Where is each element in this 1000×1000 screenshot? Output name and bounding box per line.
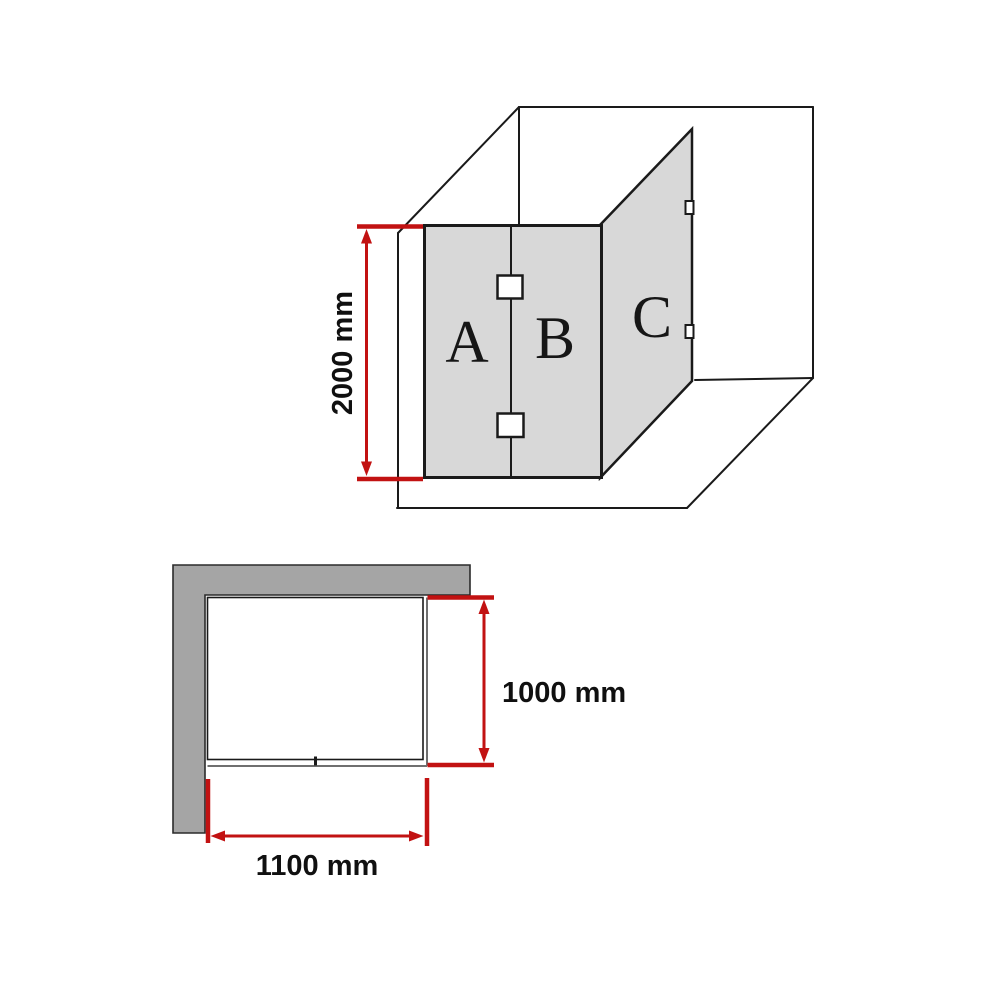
depth-dim-arrow-up	[479, 600, 490, 615]
hinge-top	[498, 276, 523, 299]
back-wall-bottom-edge	[695, 378, 813, 380]
panel-c-label: C	[632, 284, 672, 350]
plan-view: 1000 mm 1100 mm	[173, 565, 626, 882]
wall-bracket-top	[686, 201, 694, 214]
panel-a-label: A	[445, 309, 488, 375]
shower-screen-dimension-diagram: A B C 2000 mm	[0, 0, 1000, 1000]
wall-bracket-bottom	[686, 325, 694, 338]
panel-b-label: B	[535, 305, 575, 371]
ceiling-left-edge	[398, 107, 519, 233]
depth-dimension: 1000 mm	[428, 598, 627, 766]
width-dim-arrow-left	[211, 831, 226, 842]
floor-right-edge	[687, 378, 813, 508]
height-dim-arrow-up	[361, 229, 372, 244]
perspective-view: A B C 2000 mm	[327, 107, 813, 508]
depth-dim-arrow-down	[479, 748, 490, 763]
width-dim-arrow-right	[409, 831, 424, 842]
height-dimension: 2000 mm	[327, 227, 423, 480]
diagram-svg: A B C 2000 mm	[0, 0, 1000, 1000]
width-dim-label: 1100 mm	[256, 850, 379, 882]
plan-shower-outline	[208, 598, 424, 760]
depth-dim-label: 1000 mm	[502, 677, 626, 709]
height-dim-label: 2000 mm	[327, 291, 359, 415]
hinge-bottom	[498, 414, 524, 438]
height-dim-arrow-down	[361, 462, 372, 477]
width-dimension: 1100 mm	[208, 778, 427, 882]
